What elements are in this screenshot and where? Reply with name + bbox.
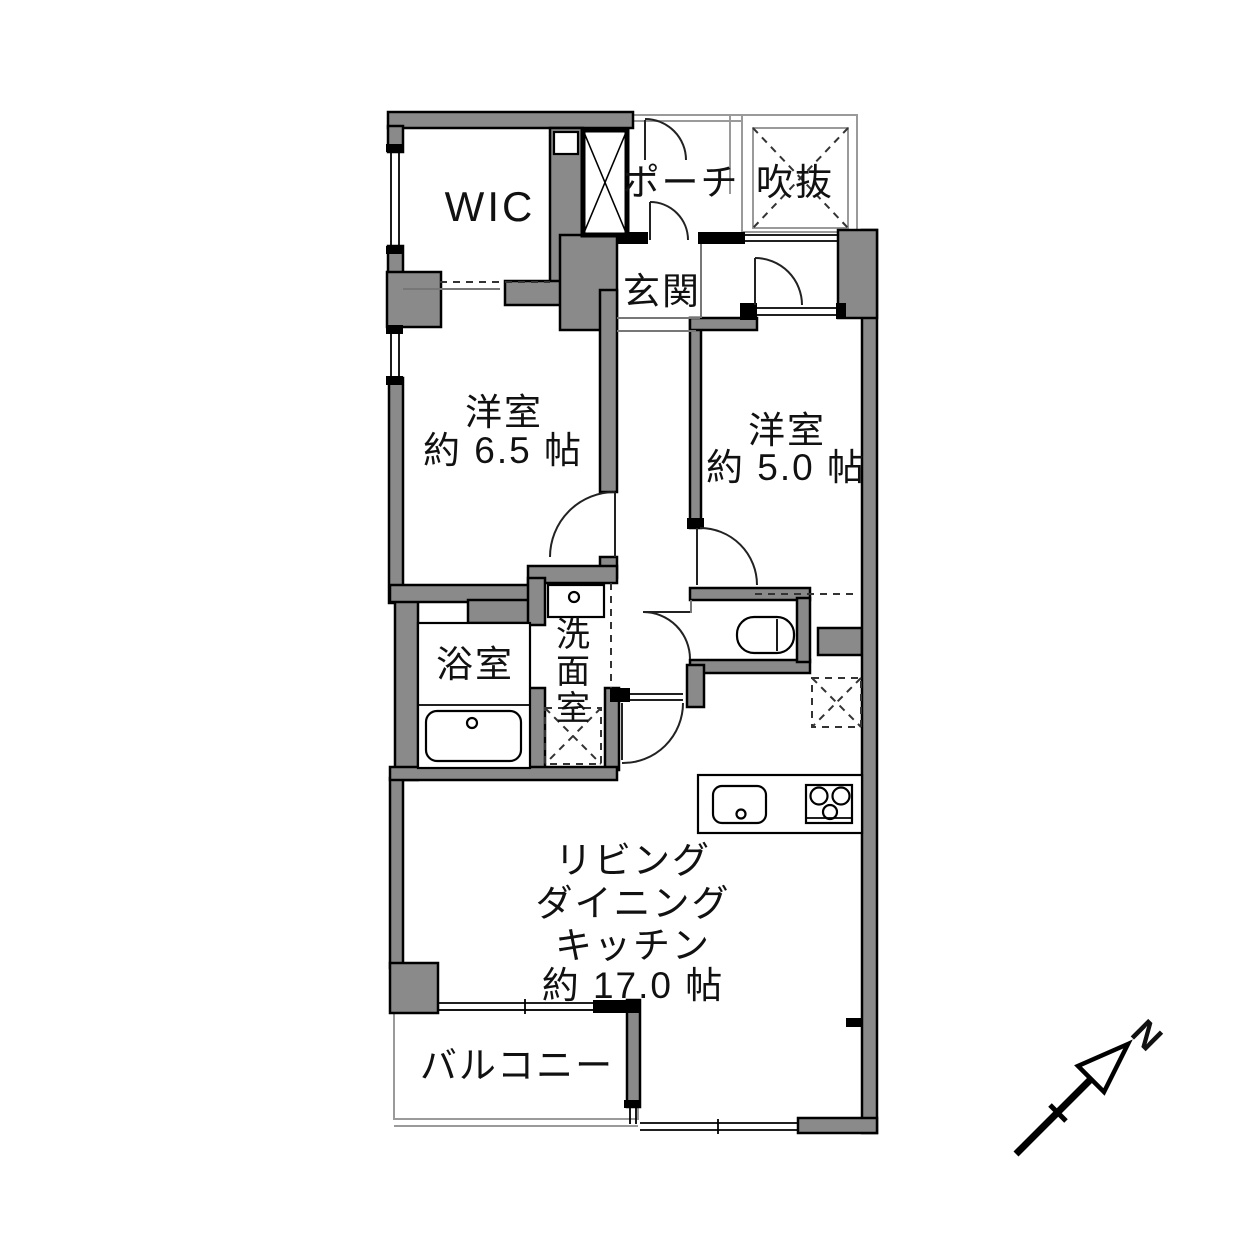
bathtub-drain: [467, 718, 477, 728]
room-size-bedroom-west: 約 6.5 帖: [423, 430, 583, 471]
pipe-shaft: [583, 130, 627, 235]
ldk-door: [622, 703, 683, 763]
vanity-sink: [548, 585, 604, 617]
floor-plan-drawing: WIC ポーチ 吹抜 玄関 洋室 約 6.5 帖 洋室 約 5.0 帖 浴室 洗…: [0, 0, 1252, 1252]
compass-shaft: [1016, 1076, 1094, 1154]
compass: N: [1016, 1011, 1171, 1154]
svg-text:リビング: リビング: [555, 840, 711, 881]
kitchen-counter: [698, 775, 862, 833]
room-label-ldk: リビング ダイニング キッチン 約 17.0 帖: [536, 840, 731, 1006]
bedroom-east-top-door: [755, 258, 802, 305]
window-wic-west: [391, 152, 399, 246]
window-hall-ldk-threshold: [625, 694, 683, 700]
room-label-bedroom-east: 洋室: [748, 410, 826, 451]
compass-north-label: N: [1123, 1011, 1170, 1058]
window-bedroom-west: [391, 334, 399, 377]
room-label-wic: WIC: [445, 183, 536, 230]
refrigerator-space: [812, 678, 861, 727]
window-bedroom-east-threshold: [757, 308, 836, 315]
room-label-porch: ポーチ: [623, 162, 740, 203]
svg-text:キッチン: キッチン: [555, 925, 711, 966]
svg-text:約 17.0 帖: 約 17.0 帖: [542, 965, 725, 1006]
porch-gate-door: [645, 119, 686, 160]
entrance-door: [650, 202, 688, 240]
room-label-bathroom: 浴室: [436, 644, 514, 685]
bedroom-west-door: [550, 492, 615, 557]
room-label-washroom: 洗 面 室: [556, 616, 590, 728]
room-label-bedroom-west: 洋室: [465, 392, 543, 433]
svg-text:面: 面: [556, 653, 590, 691]
window-ldk-south: [630, 1107, 798, 1134]
window-vestibule: [745, 235, 838, 241]
floor-plan-page: WIC ポーチ 吹抜 玄関 洋室 約 6.5 帖 洋室 約 5.0 帖 浴室 洗…: [0, 0, 1252, 1252]
room-size-bedroom-east: 約 5.0 帖: [706, 447, 866, 488]
svg-text:洗: 洗: [556, 616, 590, 654]
room-label-balcony: バルコニー: [420, 1045, 614, 1086]
room-label-void: 吹抜: [756, 162, 834, 203]
bedroom-east-hall-door: [697, 528, 757, 585]
svg-text:室: 室: [556, 690, 590, 728]
toilet-icon: [737, 617, 794, 653]
stove: [806, 785, 852, 823]
fixtures: [418, 585, 862, 833]
wall-niche: [554, 132, 578, 154]
room-label-entrance: 玄関: [623, 271, 701, 312]
toilet-door: [643, 612, 690, 659]
svg-text:ダイニング: ダイニング: [536, 883, 731, 924]
